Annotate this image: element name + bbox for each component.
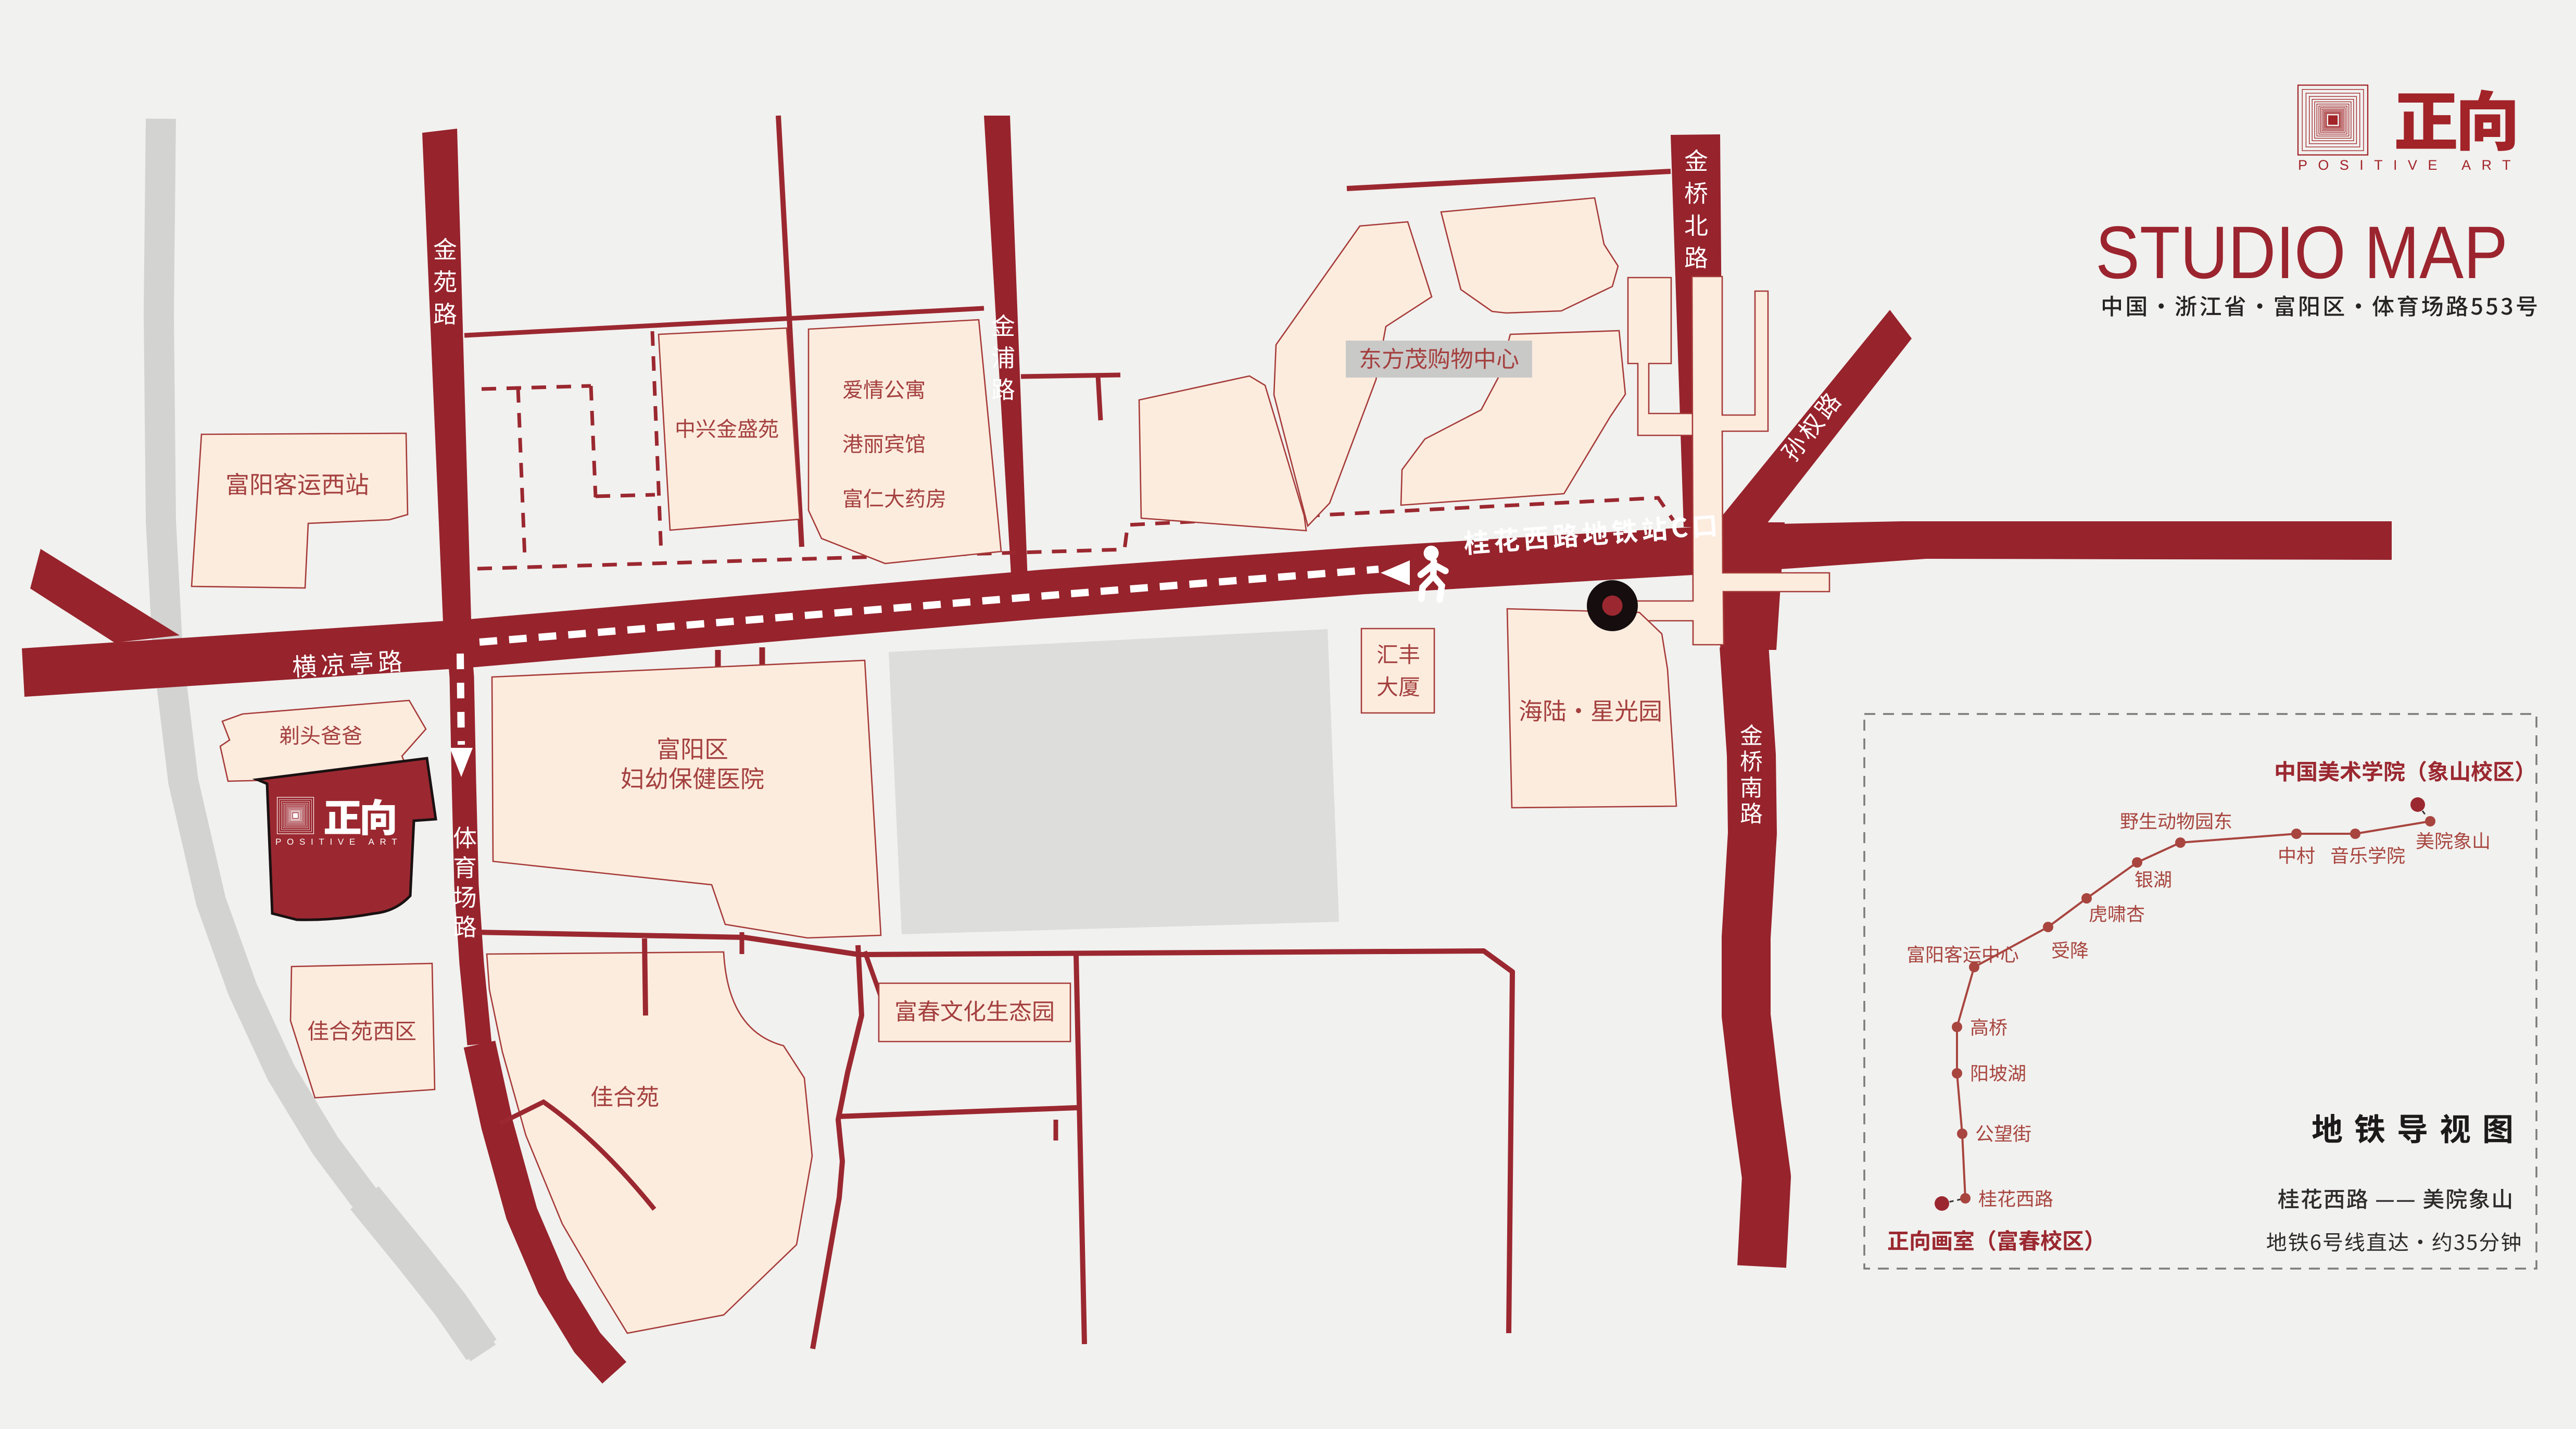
- svg-text:POSITIVE ART: POSITIVE ART: [2298, 157, 2521, 173]
- svg-text:POSITIVE ART: POSITIVE ART: [275, 837, 402, 847]
- svg-text:STUDIO MAP: STUDIO MAP: [2095, 211, 2508, 294]
